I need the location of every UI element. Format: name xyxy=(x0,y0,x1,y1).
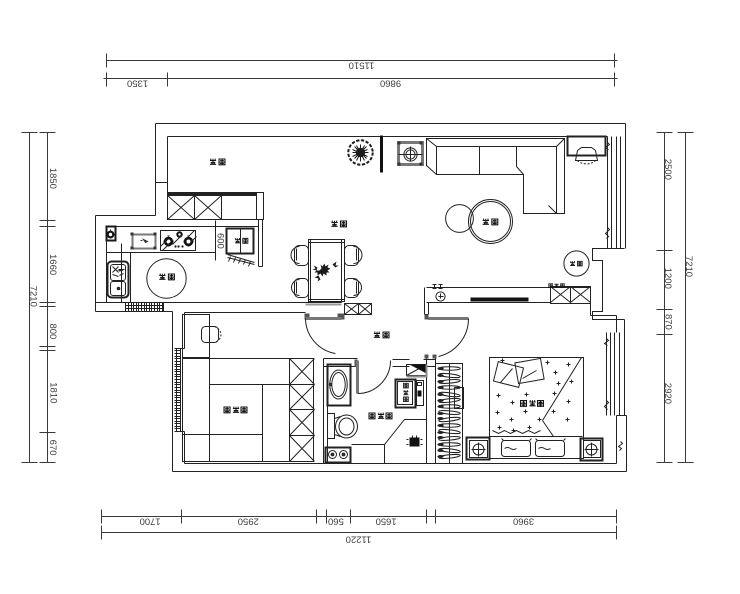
svg-text:1350: 1350 xyxy=(127,78,148,89)
svg-text:1660: 1660 xyxy=(47,254,58,275)
svg-text:9860: 9860 xyxy=(380,78,401,89)
svg-text:670: 670 xyxy=(47,440,58,456)
svg-text:7210: 7210 xyxy=(683,256,694,277)
svg-text:1700: 1700 xyxy=(140,516,161,527)
svg-text:2950: 2950 xyxy=(238,516,259,527)
svg-text:1850: 1850 xyxy=(47,168,58,189)
svg-text:7210: 7210 xyxy=(27,286,38,307)
svg-text:11510: 11510 xyxy=(349,60,375,71)
svg-text:1810: 1810 xyxy=(47,382,58,403)
svg-text:2500: 2500 xyxy=(662,159,673,180)
svg-text:600: 600 xyxy=(215,233,226,249)
svg-text:560: 560 xyxy=(328,516,344,527)
svg-text:870: 870 xyxy=(663,314,674,330)
svg-text:2920: 2920 xyxy=(662,383,673,404)
svg-text:3960: 3960 xyxy=(513,516,534,527)
svg-text:11220: 11220 xyxy=(346,533,372,544)
svg-text:1650: 1650 xyxy=(376,516,397,527)
svg-text:800: 800 xyxy=(47,323,58,339)
svg-text:1200: 1200 xyxy=(662,268,673,289)
